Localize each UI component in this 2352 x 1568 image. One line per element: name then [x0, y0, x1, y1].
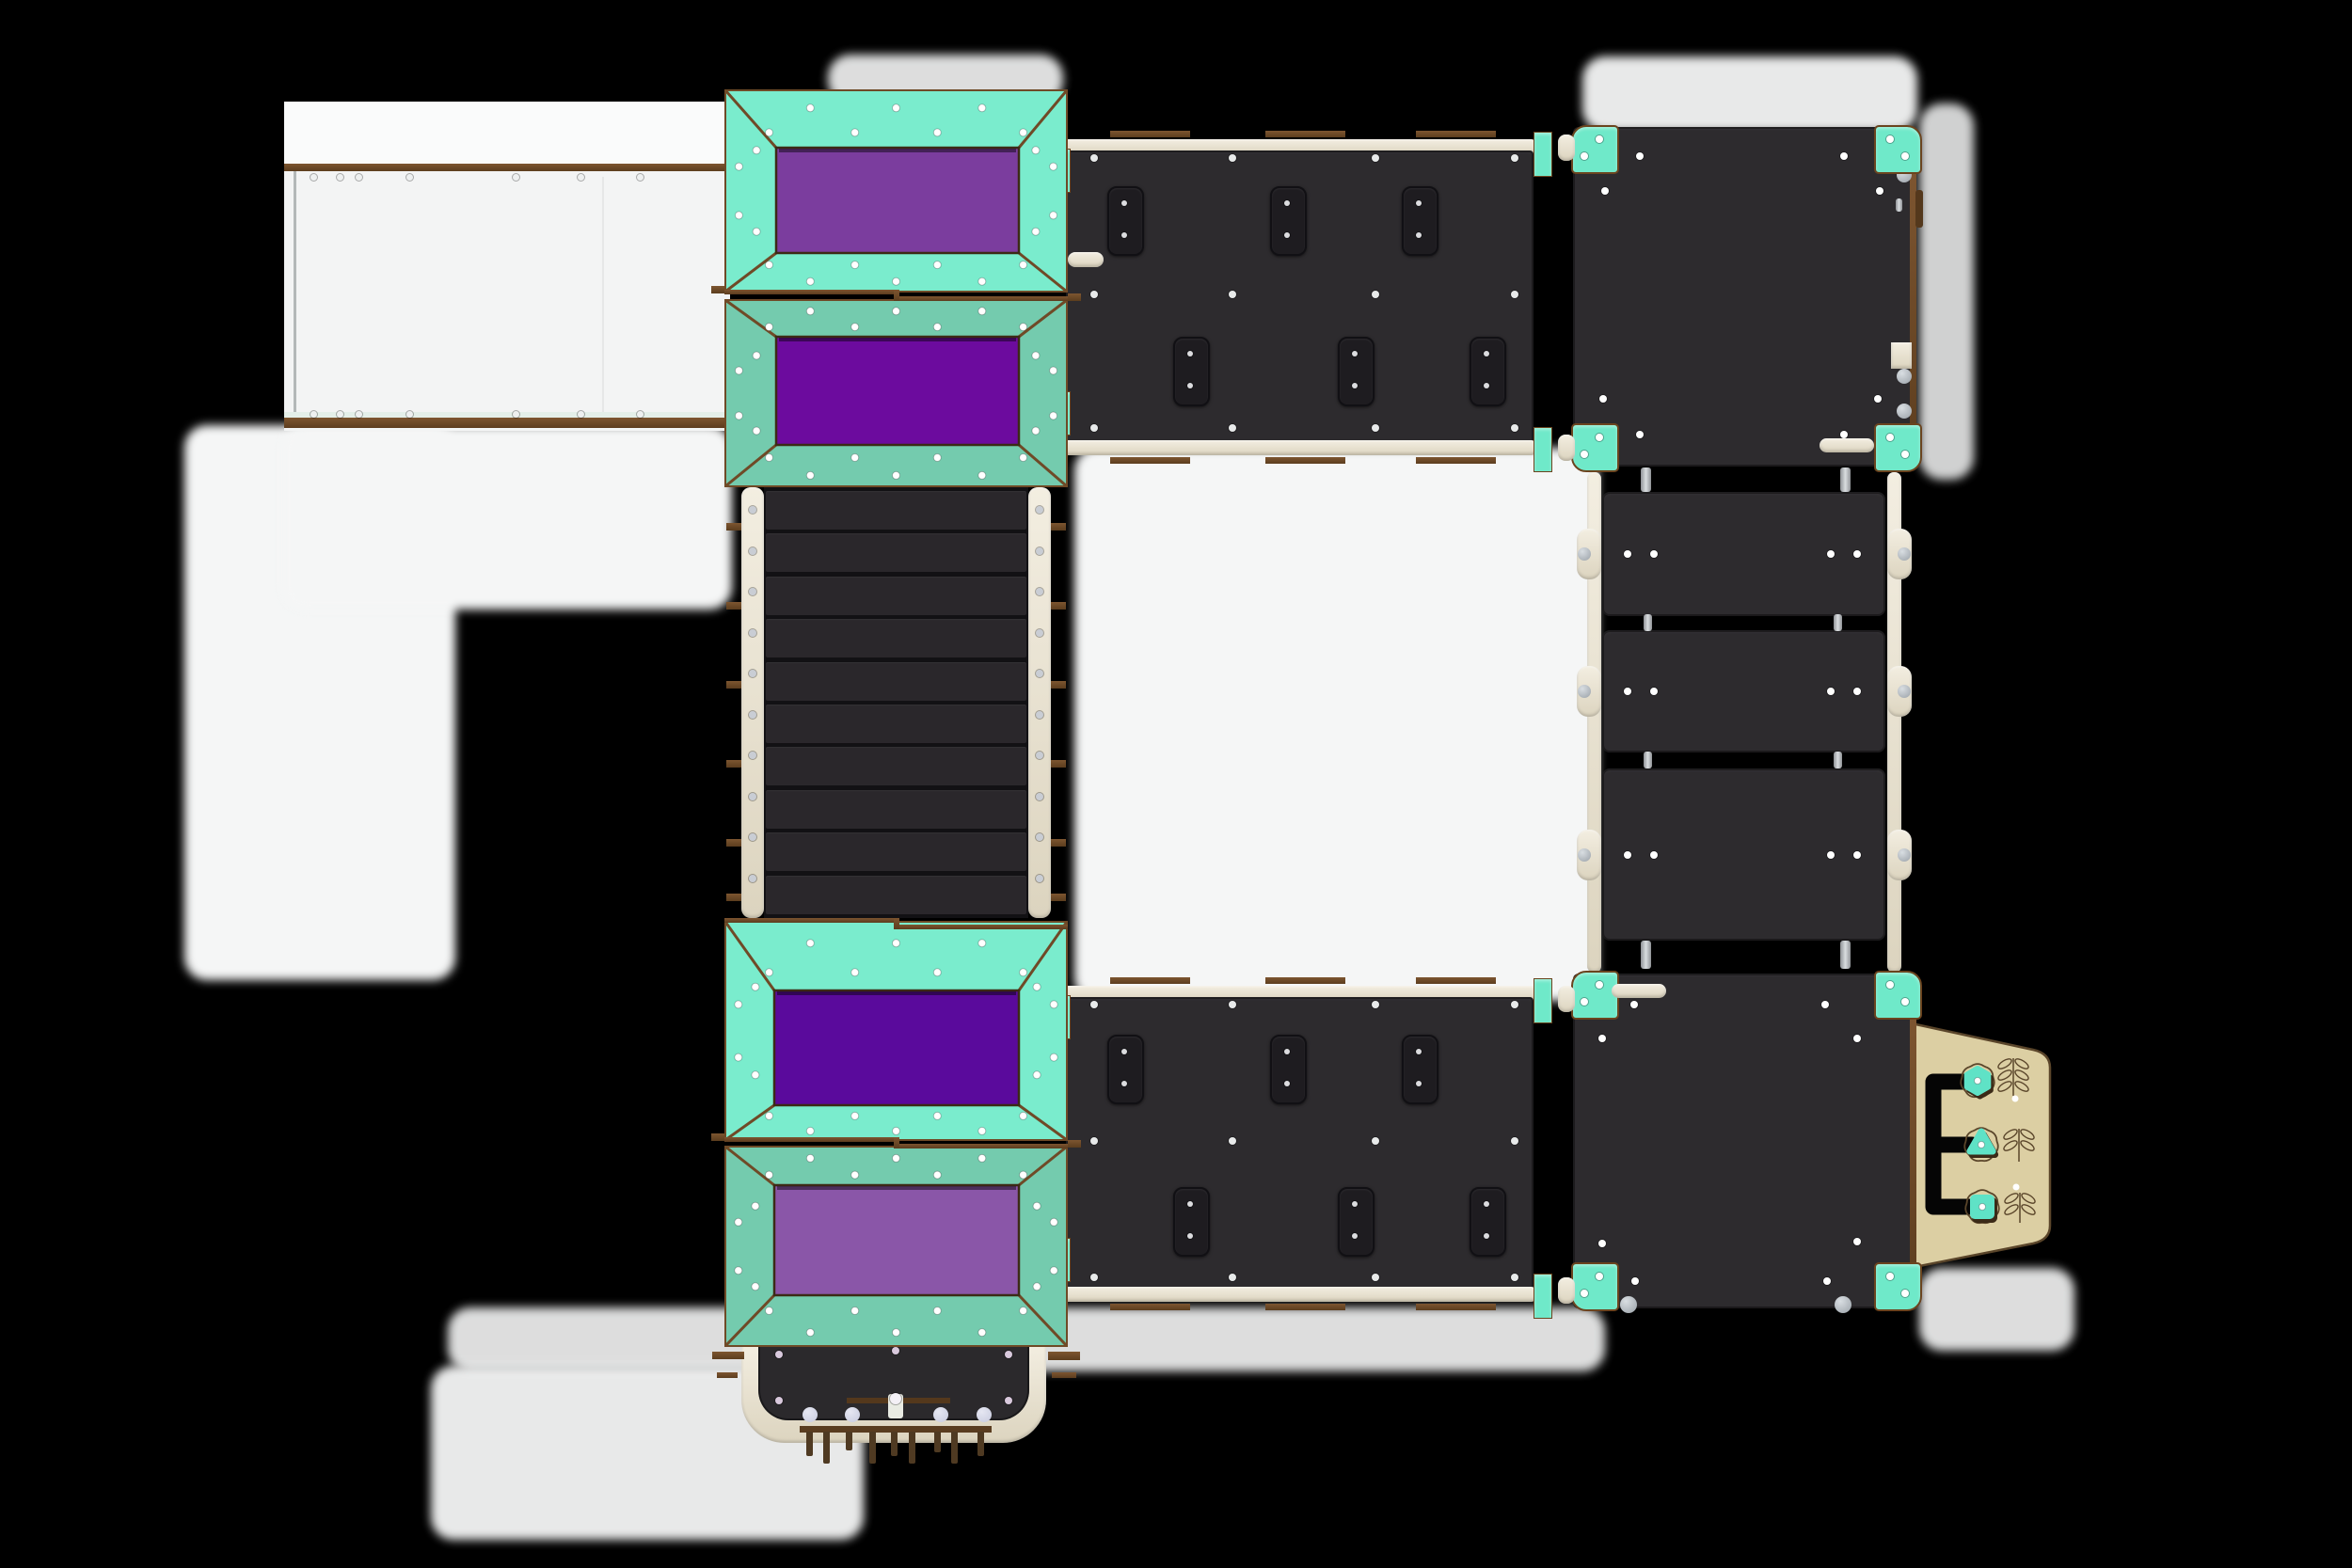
rivet	[1823, 1277, 1831, 1285]
stair-step	[1602, 630, 1885, 752]
wall-wood-dash	[1110, 131, 1190, 137]
rivet	[1840, 152, 1848, 160]
climbing-hold	[1338, 337, 1375, 406]
rivet	[1352, 1201, 1358, 1207]
rivet	[1901, 152, 1909, 160]
entrance-ball	[933, 1407, 948, 1422]
rivet	[1827, 688, 1835, 695]
roof-junction	[724, 918, 896, 923]
bridge-stub	[1051, 760, 1066, 768]
rivet	[749, 670, 756, 677]
bridge-slat	[766, 705, 1026, 743]
rivet	[1581, 998, 1588, 1006]
corner-bracket	[1571, 1262, 1619, 1311]
ground-shadow	[1919, 1268, 2074, 1351]
rail-elbow	[1558, 435, 1575, 461]
rivet	[1229, 291, 1236, 298]
climbing-hold	[1338, 1187, 1375, 1257]
bridge-slat	[766, 662, 1026, 701]
corner-bracket	[1571, 423, 1619, 472]
rivet	[1596, 1273, 1603, 1280]
rivet	[1036, 875, 1043, 882]
rivet	[1036, 833, 1043, 841]
entrance-peg	[846, 1432, 852, 1450]
climbing-hold	[1270, 1035, 1307, 1104]
rivet	[749, 875, 756, 882]
rivet	[1372, 291, 1379, 298]
rivet	[1511, 1137, 1518, 1145]
stair-pin	[1834, 614, 1842, 631]
climb-teal-sliver	[1534, 427, 1552, 472]
climb-rail-bottom	[1059, 1287, 1538, 1302]
rivet	[1036, 547, 1043, 555]
rivet	[1624, 851, 1631, 859]
rivet	[1090, 1001, 1098, 1008]
left-wall-panel	[284, 102, 730, 431]
rivet	[1036, 629, 1043, 637]
platform-bottom	[1573, 974, 1916, 1308]
rivet	[1650, 688, 1658, 695]
rivet	[1036, 752, 1043, 759]
bridge-stub	[1051, 894, 1066, 901]
entrance-peg	[806, 1432, 813, 1456]
rivet	[1630, 1001, 1638, 1008]
platform-handle	[1820, 438, 1874, 452]
climb-rail-bottom	[1059, 440, 1538, 455]
rivet	[337, 411, 343, 418]
bridge-slat	[766, 876, 1026, 914]
corner-bracket	[1571, 971, 1619, 1020]
rivet	[749, 547, 756, 555]
climb-teal-sliver	[1534, 978, 1552, 1023]
climbing-hold	[1107, 1035, 1144, 1104]
ground-shadow	[1074, 448, 1597, 1001]
rivet	[1853, 1035, 1861, 1042]
rivet	[1853, 851, 1861, 859]
stair-knob	[1578, 685, 1591, 698]
wall-wood-dash	[1110, 1304, 1190, 1310]
platform-box-bracket	[1891, 342, 1912, 369]
bridge-slat	[766, 619, 1026, 657]
platform-top	[1573, 127, 1916, 467]
rivet	[1229, 154, 1236, 162]
corner-bracket	[1874, 423, 1922, 472]
rivet	[1372, 1001, 1379, 1008]
rivet	[1372, 154, 1379, 162]
wall-wood-dash	[1110, 457, 1190, 464]
stair-knob	[1898, 547, 1911, 561]
rivet	[337, 174, 343, 181]
rivet	[1229, 1274, 1236, 1281]
rivet	[1581, 152, 1588, 160]
rivet	[1352, 1233, 1358, 1239]
stair-knob	[1898, 685, 1911, 698]
roof-junction	[896, 925, 1068, 929]
climbing-hold	[1402, 186, 1438, 256]
rivet	[406, 411, 413, 418]
rivet	[513, 174, 519, 181]
rivet	[637, 411, 644, 418]
rivet	[892, 1347, 899, 1354]
bridge	[741, 487, 1051, 920]
rivet	[1598, 1035, 1606, 1042]
roof-lower-top	[724, 921, 1068, 1141]
stair-pin	[1644, 614, 1652, 631]
wall-wood-dash	[1416, 1304, 1496, 1310]
bridge-stub	[726, 760, 741, 768]
corner-bracket	[1571, 125, 1619, 174]
climb-teal-sliver	[1534, 132, 1552, 177]
rivet	[1284, 1081, 1290, 1086]
rivet	[1416, 200, 1422, 206]
bridge-slat	[766, 832, 1026, 871]
bridge-stub	[726, 894, 741, 901]
rivet	[578, 411, 584, 418]
bridge-slat	[766, 533, 1026, 572]
rivet	[1372, 1137, 1379, 1145]
roof-stub	[1068, 1140, 1081, 1148]
roof-junction	[724, 290, 896, 294]
rivet	[1624, 688, 1631, 695]
roof-junction	[896, 296, 1068, 301]
wall-roof-strip	[284, 102, 730, 164]
rivet	[1901, 451, 1909, 458]
rivet	[1901, 1290, 1909, 1297]
rivet	[1352, 383, 1358, 388]
rivet	[1511, 424, 1518, 432]
rivet	[356, 411, 362, 418]
platform-pin	[1641, 467, 1651, 492]
rivet	[1187, 1233, 1193, 1239]
rivet	[749, 711, 756, 719]
rivet	[749, 506, 756, 514]
rivet	[1599, 395, 1607, 403]
bridge-stub	[726, 523, 741, 531]
rivet	[1484, 1201, 1489, 1207]
rivet	[1650, 851, 1658, 859]
rivet	[1596, 135, 1603, 143]
roof-junction	[896, 1144, 1068, 1148]
platform-pin	[1840, 467, 1851, 492]
wall-left-edge	[294, 167, 296, 421]
rivet	[1484, 383, 1489, 388]
rivet	[1886, 981, 1894, 989]
rivet	[1511, 1274, 1518, 1281]
rivet	[1636, 431, 1644, 438]
climbing-hold	[1173, 337, 1210, 406]
platform-halfball	[1620, 1296, 1637, 1313]
rivet	[749, 629, 756, 637]
rivet	[1853, 550, 1861, 558]
rivet	[1416, 232, 1422, 238]
wall-wood-dash	[1416, 457, 1496, 464]
wall-wood-dash	[1416, 977, 1496, 984]
platform-knob	[1897, 404, 1912, 419]
rivet	[1090, 1274, 1098, 1281]
rivet	[1511, 154, 1518, 162]
rivet	[1090, 424, 1098, 432]
entrance-peg	[869, 1432, 876, 1464]
wall-wood-dash	[1265, 131, 1345, 137]
roof-upper-bottom	[724, 299, 1068, 487]
rivet	[1416, 1049, 1422, 1054]
rivet	[1036, 506, 1043, 514]
entrance-ball	[845, 1407, 860, 1422]
rivet	[1853, 688, 1861, 695]
rivet	[1827, 550, 1835, 558]
corner-bracket	[1874, 1262, 1922, 1311]
roof-stub	[711, 1133, 724, 1141]
rivet	[1901, 998, 1909, 1006]
rivet	[1121, 1049, 1127, 1054]
playground-top-view	[0, 0, 2352, 1568]
stair-pin	[1644, 752, 1652, 768]
rivet	[1090, 154, 1098, 162]
rivet	[1090, 291, 1098, 298]
rivet	[1284, 1049, 1290, 1054]
bridge-stub	[1051, 523, 1066, 531]
rivet	[310, 411, 317, 418]
rivet	[1874, 395, 1882, 403]
stair-step	[1602, 768, 1885, 941]
rivet	[1840, 431, 1848, 438]
roof-stub	[711, 286, 724, 293]
wall-wood-dash	[1265, 457, 1345, 464]
roof-junction	[894, 918, 899, 929]
rivet	[637, 174, 644, 181]
bridge-slat	[766, 790, 1026, 829]
entrance-peg	[934, 1432, 941, 1452]
bridge-stub	[726, 681, 741, 689]
wall-wood-dash	[1265, 977, 1345, 984]
roof-junction	[894, 290, 899, 301]
rivet	[1416, 1081, 1422, 1086]
rivet	[310, 174, 317, 181]
entrance-peg	[909, 1432, 915, 1464]
platform-edge-wood	[1910, 1016, 1916, 1298]
rivet	[1827, 851, 1835, 859]
platform-pin	[1896, 198, 1902, 212]
ground-shadow	[1582, 56, 1917, 132]
climbing-hold	[1402, 1035, 1438, 1104]
bridge-stub	[1051, 602, 1066, 610]
rivet	[1650, 550, 1658, 558]
entrance-ball	[977, 1407, 992, 1422]
wall-wood-dash	[1265, 1304, 1345, 1310]
roof-upper-top	[724, 89, 1068, 293]
rivet	[1005, 1351, 1012, 1358]
rivet	[1187, 1201, 1193, 1207]
rivet	[1121, 232, 1127, 238]
rivet	[1372, 1274, 1379, 1281]
stair-pin	[1641, 941, 1651, 969]
bridge-stub	[726, 839, 741, 847]
climbing-hold	[1470, 1187, 1506, 1257]
rail-elbow	[1558, 1277, 1575, 1304]
rail-elbow	[1558, 986, 1575, 1012]
climbing-hold	[1470, 337, 1506, 406]
climb-teal-sliver	[1534, 1274, 1552, 1319]
rivet	[1036, 588, 1043, 595]
bridge-stub	[1051, 681, 1066, 689]
roof-junction	[894, 1137, 899, 1148]
rivet	[1484, 351, 1489, 356]
rivet	[1853, 1238, 1861, 1245]
corner-bracket	[1874, 125, 1922, 174]
climbing-hold	[1173, 1187, 1210, 1257]
stair-step	[1602, 492, 1885, 616]
rivet	[1121, 1081, 1127, 1086]
rivet	[1187, 383, 1193, 388]
rivet	[1484, 1233, 1489, 1239]
stair-pin	[1834, 752, 1842, 768]
rivet	[1229, 1001, 1236, 1008]
corner-bracket	[1874, 971, 1922, 1020]
rivet	[1581, 451, 1588, 458]
rivet	[1005, 1397, 1012, 1404]
stair-knob	[1578, 547, 1591, 561]
rail-elbow	[1558, 135, 1575, 161]
bridge-slat	[766, 747, 1026, 785]
entrance-side-stick	[712, 1352, 744, 1359]
platform-halfball	[1835, 1296, 1851, 1313]
rivet	[1821, 1001, 1829, 1008]
stair-knob	[1578, 848, 1591, 862]
wall-seam	[602, 177, 604, 417]
rivet	[1036, 793, 1043, 800]
rivet	[513, 411, 519, 418]
entrance-side-stick	[717, 1372, 738, 1378]
stair-knob	[1898, 848, 1911, 862]
rivet	[1876, 187, 1883, 195]
rivet	[406, 174, 413, 181]
rivet	[749, 752, 756, 759]
rivet	[1372, 424, 1379, 432]
rivet	[1636, 152, 1644, 160]
rivet	[1352, 351, 1358, 356]
rivet	[1886, 1273, 1894, 1280]
wall-wood-dash	[1110, 977, 1190, 984]
bridge-slat	[766, 577, 1026, 615]
bridge-stub	[1051, 839, 1066, 847]
platform-latch	[1915, 190, 1923, 228]
rivet	[1187, 351, 1193, 356]
roof-lower-bottom	[724, 1146, 1068, 1347]
rivet	[1511, 1001, 1518, 1008]
platform-handle	[1612, 984, 1666, 998]
rivet	[1284, 232, 1290, 238]
entrance-peg	[823, 1432, 830, 1464]
wall-wood-dash	[1416, 131, 1496, 137]
rivet	[749, 588, 756, 595]
platform-knob	[1897, 369, 1912, 384]
ground-shadow	[1919, 103, 1974, 480]
rivet	[749, 793, 756, 800]
wall-rail-bottom	[284, 418, 730, 428]
entrance-ball	[803, 1407, 818, 1422]
bridge-slat	[766, 491, 1026, 530]
rivet	[749, 833, 756, 841]
rivet	[1581, 1290, 1588, 1297]
entrance-side-stick	[1052, 1372, 1076, 1378]
rivet	[1596, 981, 1603, 989]
rivet	[578, 174, 584, 181]
rivet	[1598, 1240, 1606, 1247]
entrance-peg	[891, 1432, 898, 1456]
entrance-peg	[951, 1432, 958, 1464]
rivet	[775, 1351, 783, 1358]
rivet	[775, 1397, 783, 1404]
rivet	[1121, 200, 1127, 206]
rivet	[1036, 670, 1043, 677]
rivet	[1090, 1137, 1098, 1145]
roof-stub	[1068, 293, 1081, 301]
rivet	[1229, 1137, 1236, 1145]
rivet	[1036, 711, 1043, 719]
stair-pin	[1840, 941, 1851, 969]
rivet	[1631, 1277, 1639, 1285]
rivet	[1284, 200, 1290, 206]
climbing-hold	[1107, 186, 1144, 256]
climbing-hold	[1270, 186, 1307, 256]
rivet	[890, 1393, 901, 1404]
entrance-peg	[977, 1432, 984, 1456]
ground-shadow	[282, 425, 732, 610]
rail-stub	[1068, 252, 1104, 267]
rivet	[356, 174, 362, 181]
rivet	[1624, 550, 1631, 558]
rivet	[1886, 434, 1894, 441]
entrance-side-stick	[1048, 1352, 1080, 1360]
rivet	[1229, 424, 1236, 432]
rivet	[1596, 434, 1603, 441]
rivet	[1601, 187, 1609, 195]
bridge-stub	[726, 602, 741, 610]
rivet	[1511, 291, 1518, 298]
activity-panel	[1900, 1006, 2070, 1279]
rivet	[1886, 135, 1894, 143]
wall-rail-top	[284, 164, 730, 171]
roof-junction	[724, 1137, 896, 1142]
